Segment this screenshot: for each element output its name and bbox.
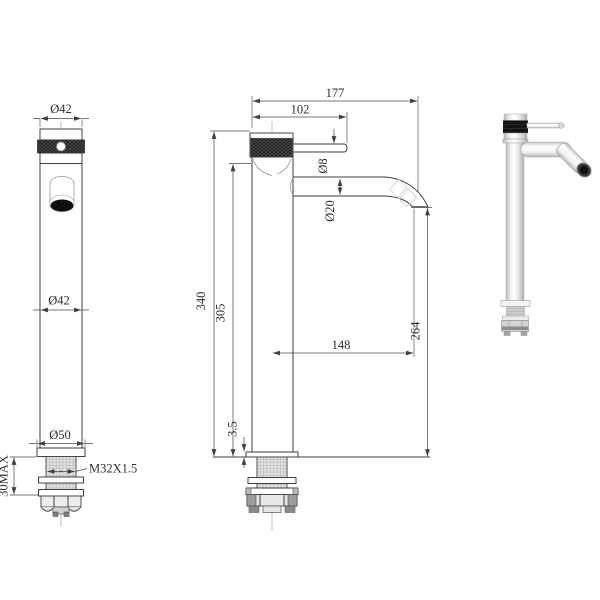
side-shank-tail bbox=[263, 506, 281, 513]
front-lever-end bbox=[57, 142, 66, 151]
dim-label-lever-reach: 102 bbox=[291, 103, 310, 117]
render-foot-left bbox=[504, 332, 510, 336]
side-washer-upper bbox=[248, 478, 296, 484]
dim-label-overall-height: 340 bbox=[194, 292, 208, 311]
side-handle-knurl-band bbox=[251, 139, 292, 157]
front-washer-upper bbox=[39, 477, 84, 483]
dim-label-lever-diameter: Ø8 bbox=[316, 158, 330, 173]
front-dim-mount-thickness: 30MAX bbox=[0, 455, 38, 497]
technical-drawing-sheet: Ø42 Ø42 Ø50 bbox=[0, 0, 600, 600]
side-mounting-nut bbox=[247, 495, 297, 507]
faucet-drawing-svg: Ø42 Ø42 Ø50 bbox=[0, 0, 600, 600]
front-view: Ø42 Ø42 Ø50 bbox=[0, 102, 137, 527]
render-top-cap bbox=[504, 114, 527, 121]
side-base-flange bbox=[246, 452, 298, 457]
side-lever-rod bbox=[293, 144, 347, 152]
side-dim-base-plate: 3.5 bbox=[226, 421, 245, 468]
side-washer-lower bbox=[246, 488, 298, 495]
render-spout bbox=[521, 141, 594, 180]
dim-label-outlet-clearance: 264 bbox=[409, 321, 423, 341]
side-foot-right bbox=[285, 506, 295, 513]
render-view bbox=[501, 114, 594, 336]
render-base-assembly bbox=[501, 301, 530, 336]
side-dim-body-height: 305 bbox=[214, 164, 252, 457]
side-dim-outlet-clearance: 264 bbox=[409, 208, 433, 457]
dim-label-thread-spec: M32X1.5 bbox=[89, 462, 137, 476]
side-body-outline bbox=[252, 157, 293, 452]
dim-label-spout-projection: 148 bbox=[332, 338, 351, 352]
dim-label-spout-diameter: Ø20 bbox=[323, 200, 337, 222]
dim-label-front-base-diameter: Ø50 bbox=[49, 428, 71, 442]
render-foot-right bbox=[521, 332, 527, 336]
render-lower-cap bbox=[504, 133, 527, 139]
render-base-flange bbox=[501, 301, 530, 307]
render-body-column bbox=[506, 143, 524, 301]
render-knurl-band bbox=[503, 121, 528, 134]
side-foot-left bbox=[249, 506, 259, 513]
dim-label-mount-thickness: 30MAX bbox=[0, 455, 11, 497]
dim-label-base-plate: 3.5 bbox=[226, 421, 240, 437]
aerator-outlet bbox=[51, 200, 74, 212]
dim-label-front-top-diameter: Ø42 bbox=[50, 102, 72, 116]
side-view: 177 102 Ø8 Ø bbox=[194, 86, 432, 530]
front-washer-lower bbox=[39, 490, 84, 497]
dim-label-body-height: 305 bbox=[214, 304, 228, 323]
render-lever bbox=[527, 123, 564, 129]
side-dim-spout-projection: 148 bbox=[273, 209, 414, 358]
render-shoulder-ring bbox=[503, 139, 528, 143]
render-washer bbox=[503, 316, 529, 321]
dim-label-overall-reach: 177 bbox=[326, 86, 345, 100]
side-dim-overall-height: 340 bbox=[194, 131, 250, 456]
front-base-flange bbox=[37, 448, 85, 457]
dim-label-front-body-diameter: Ø42 bbox=[48, 294, 70, 308]
side-spout bbox=[290, 177, 428, 207]
